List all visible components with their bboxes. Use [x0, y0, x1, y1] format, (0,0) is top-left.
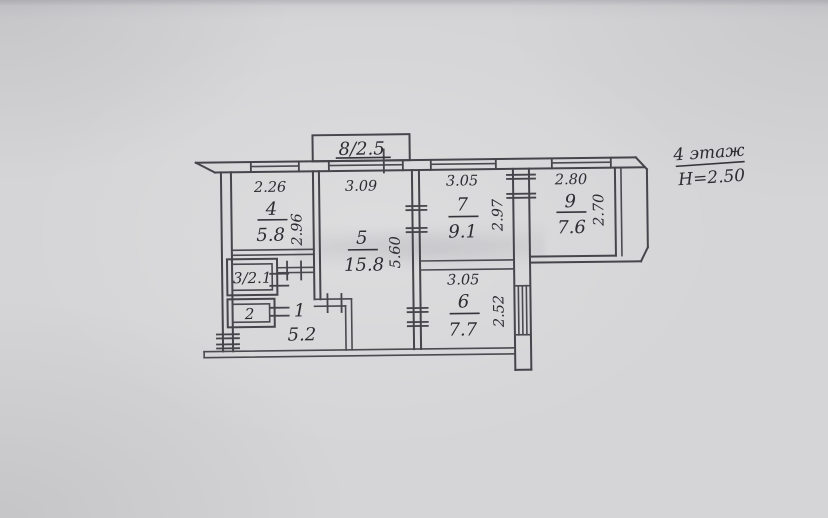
room-6-area: 7.7 [448, 319, 477, 340]
bathroom-label: 3/2.1 [233, 269, 272, 287]
room-7-depth-dim: 2.97 [490, 198, 506, 232]
room-7-area: 9.1 [448, 221, 477, 242]
room-5-number: 5 [356, 228, 368, 249]
floor-plan-drawing: 2.26 4 5.8 2.96 3.09 5 15.8 5.60 3.05 7 … [0, 0, 828, 518]
room-9-depth-dim: 2.70 [591, 194, 607, 227]
room-4-number: 4 [265, 199, 278, 220]
room-7-width-dim: 3.05 [446, 173, 478, 189]
plan-note: 4 этаж H=2.50 [672, 141, 748, 191]
room-5-area: 15.8 [344, 254, 384, 275]
room-9-width-dim: 2.80 [554, 172, 587, 188]
room-7-number: 7 [456, 194, 468, 215]
room-4-depth-dim: 2.96 [289, 213, 305, 246]
room-5-width-dim: 3.09 [345, 179, 377, 195]
windows [251, 147, 611, 174]
corridor-number: 1 [294, 300, 306, 321]
scanned-floor-plan-page: 2.26 4 5.8 2.96 3.09 5 15.8 5.60 3.05 7 … [0, 0, 828, 518]
room-6-number: 6 [458, 291, 470, 312]
vent-shaft [514, 286, 531, 335]
room-9-number: 9 [564, 191, 576, 212]
room-4-area: 5.8 [256, 225, 285, 246]
ceiling-height-label: H=2.50 [677, 166, 746, 191]
room-6-depth-dim: 2.52 [491, 295, 507, 328]
wc-label: 2 [244, 305, 255, 323]
room-4-width-dim: 2.26 [253, 180, 286, 196]
corridor-area: 5.2 [287, 324, 316, 345]
room-6-width-dim: 3.05 [447, 272, 479, 288]
room-9-area: 7.6 [557, 217, 586, 238]
room-5-depth-dim: 5.60 [388, 236, 404, 268]
